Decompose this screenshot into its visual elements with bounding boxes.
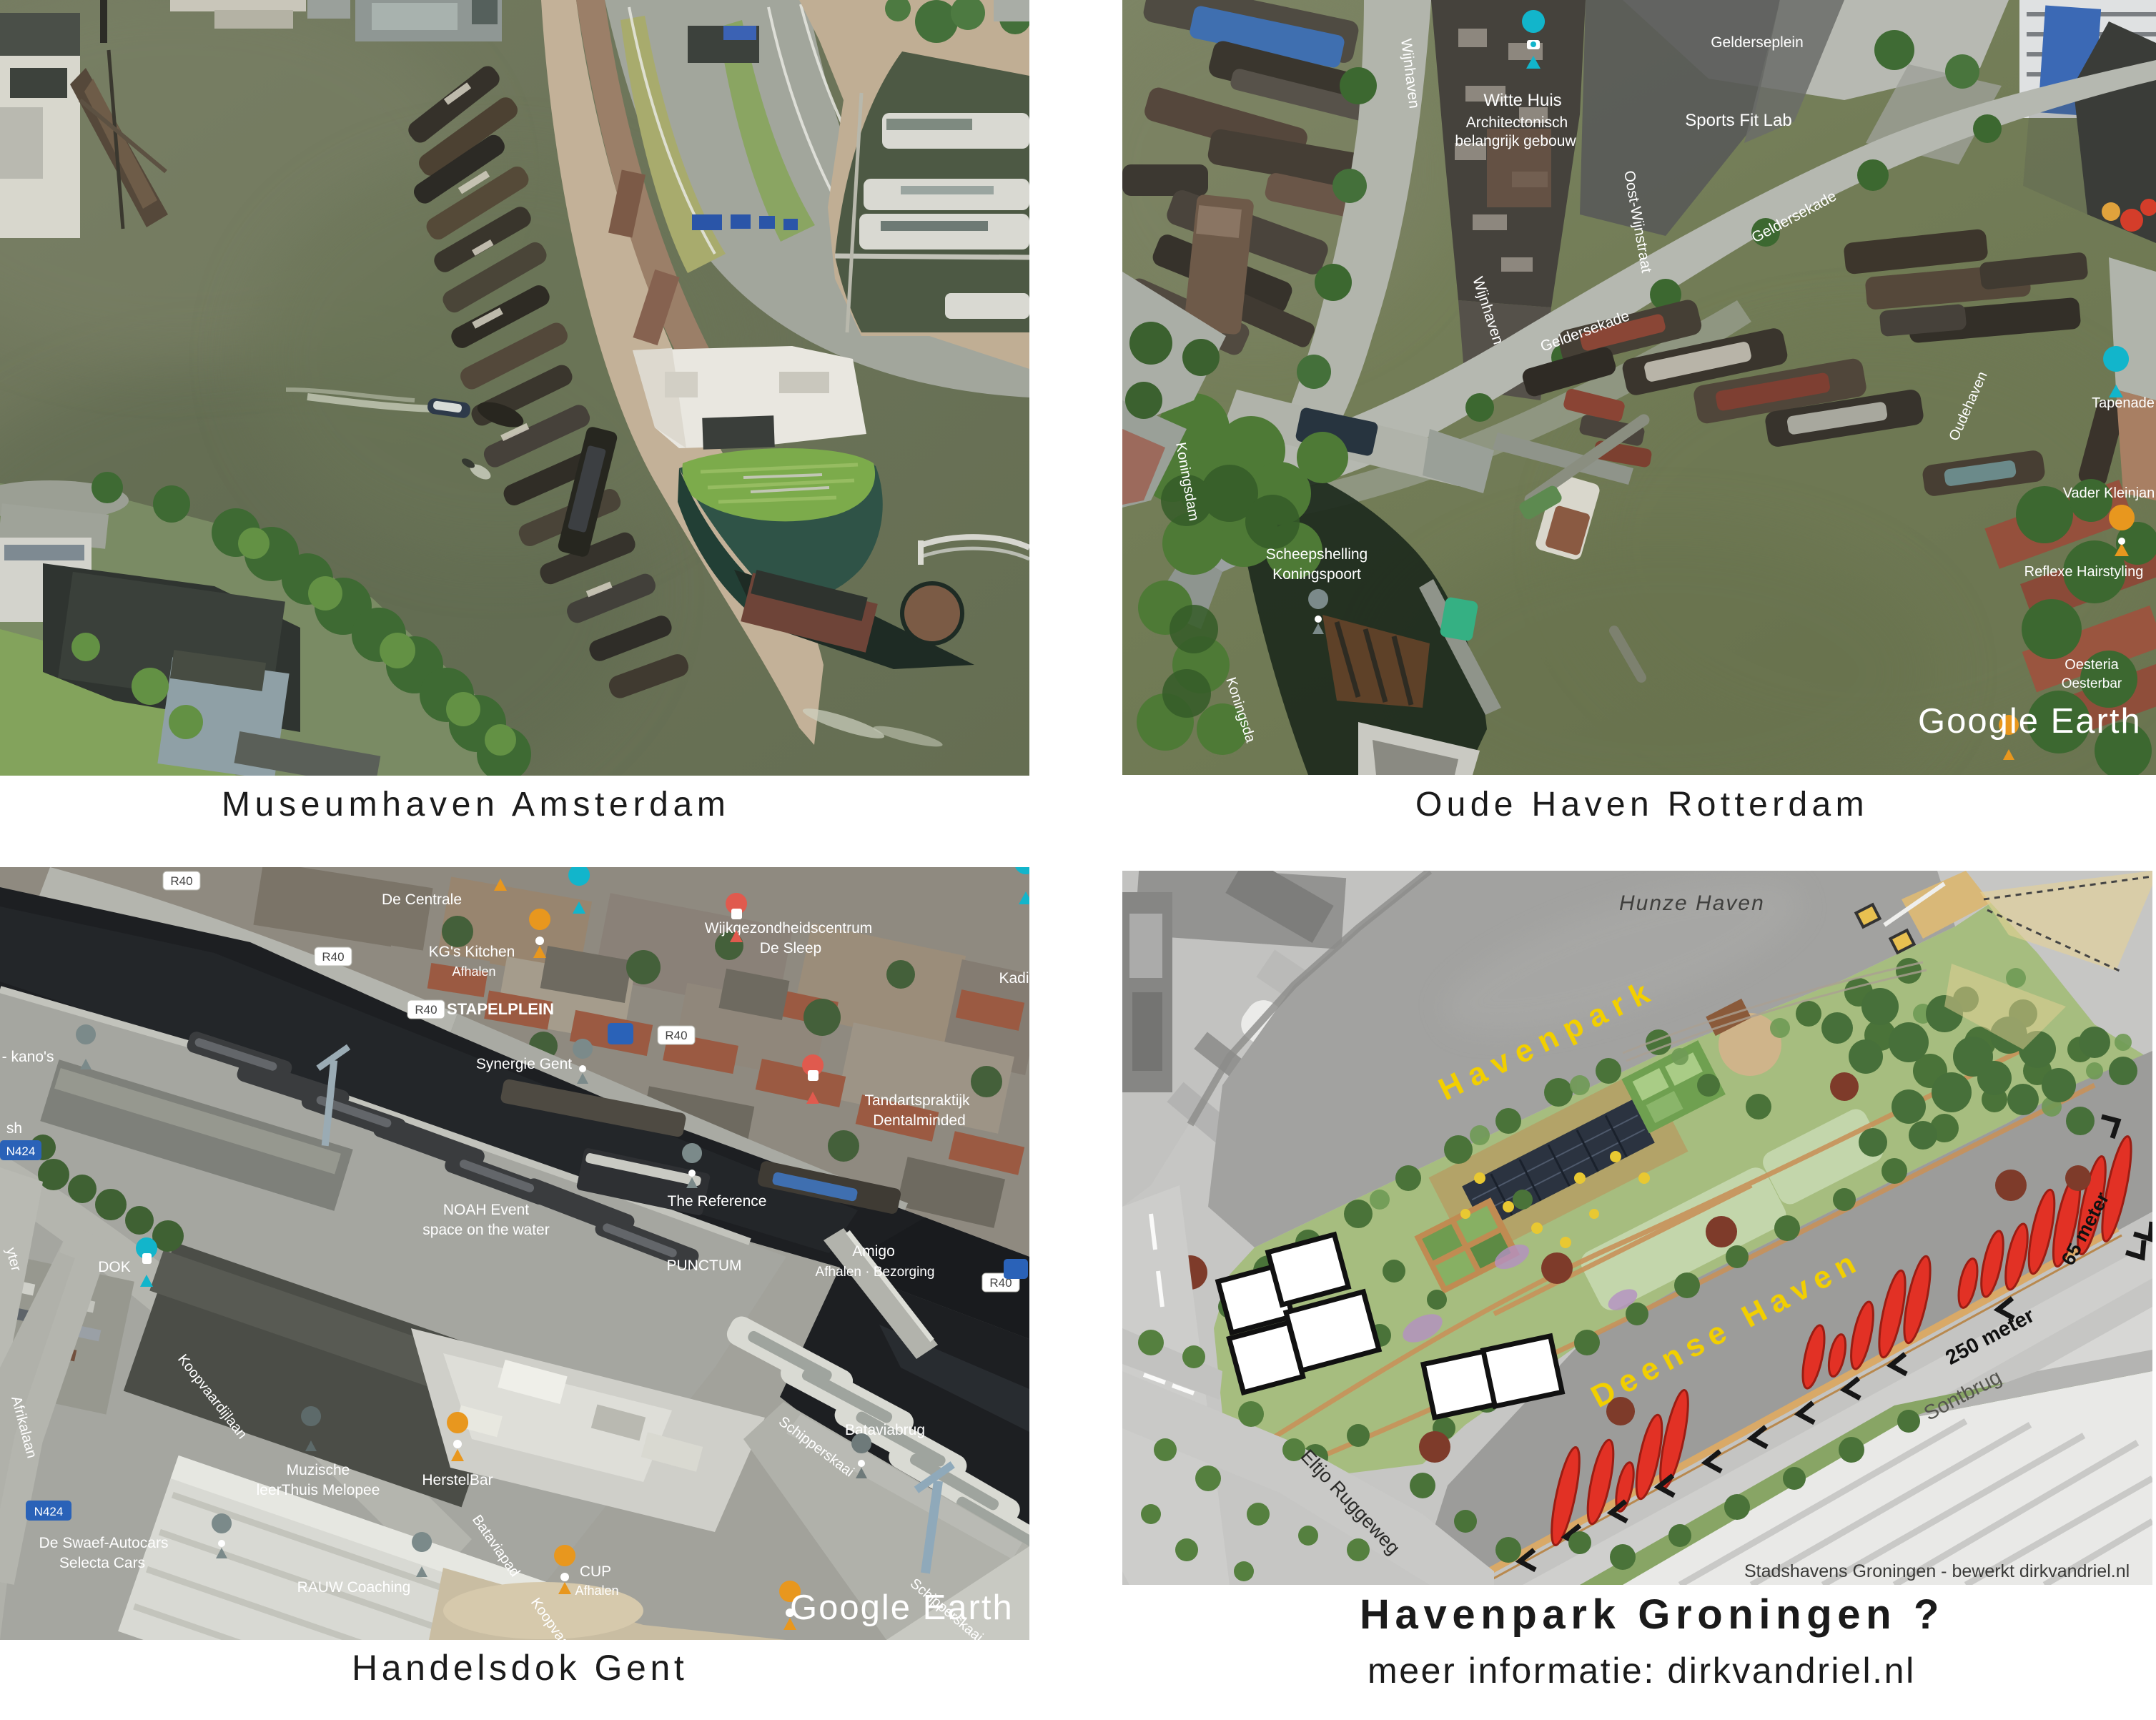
svg-text:R40: R40 <box>170 874 192 888</box>
svg-text:Oesteria: Oesteria <box>2064 657 2119 673</box>
svg-text:Tandartspraktijk: Tandartspraktijk <box>864 1092 970 1109</box>
svg-text:O - kano's: O - kano's <box>0 1049 54 1065</box>
svg-text:Tapenade: Tapenade <box>2092 395 2155 411</box>
svg-text:Amigo: Amigo <box>852 1243 895 1260</box>
svg-text:Kadir: Kadir <box>999 970 1029 987</box>
svg-text:Afhalen: Afhalen <box>575 1583 618 1598</box>
svg-text:Google Earth: Google Earth <box>790 1588 1014 1627</box>
svg-text:PUNCTUM: PUNCTUM <box>667 1257 742 1274</box>
svg-text:NOAH Event: NOAH Event <box>443 1202 529 1218</box>
svg-text:De Sleep: De Sleep <box>760 940 821 957</box>
svg-text:Stadshavens Groningen - bewer: Stadshavens Groningen - bewerkt dirkvand… <box>1744 1561 2130 1581</box>
svg-text:Muzische: Muzische <box>287 1462 350 1478</box>
svg-text:Gelderseplein: Gelderseplein <box>1711 34 1804 51</box>
svg-text:Vader Kleinjan C: Vader Kleinjan C <box>2063 485 2156 501</box>
svg-text:Witte Huis: Witte Huis <box>1483 91 1561 110</box>
svg-text:Wijkgezondheidscentrum: Wijkgezondheidscentrum <box>705 920 873 936</box>
svg-text:space on the water: space on the water <box>422 1222 549 1238</box>
svg-text:N424: N424 <box>34 1505 64 1518</box>
svg-text:sh: sh <box>6 1120 22 1137</box>
svg-text:DOK: DOK <box>98 1259 131 1275</box>
svg-text:N424: N424 <box>6 1145 36 1158</box>
svg-text:STAPELPLEIN: STAPELPLEIN <box>447 1000 554 1018</box>
svg-text:Oesterbar: Oesterbar <box>2062 676 2122 691</box>
svg-text:R40: R40 <box>665 1029 687 1042</box>
svg-text:Architectonisch: Architectonisch <box>1466 114 1568 131</box>
svg-text:Synergie Gent: Synergie Gent <box>476 1056 572 1072</box>
svg-text:Hunze Haven: Hunze Haven <box>1619 891 1765 915</box>
svg-text:Afhalen: Afhalen <box>452 964 495 979</box>
svg-text:R40: R40 <box>415 1003 437 1017</box>
svg-text:HerstelBar: HerstelBar <box>422 1472 493 1488</box>
svg-text:CUP: CUP <box>580 1563 611 1580</box>
svg-text:Sports Fit Lab: Sports Fit Lab <box>1685 111 1791 130</box>
svg-text:leerThuis Melopee: leerThuis Melopee <box>257 1482 380 1498</box>
svg-text:Dentalminded: Dentalminded <box>873 1112 966 1129</box>
svg-text:Google Earth: Google Earth <box>1918 702 2142 741</box>
svg-text:Koningspoort: Koningspoort <box>1272 566 1361 583</box>
svg-text:KG's Kitchen: KG's Kitchen <box>429 944 515 960</box>
svg-text:Selecta Cars: Selecta Cars <box>59 1555 145 1571</box>
svg-text:The Reference: The Reference <box>668 1193 767 1210</box>
svg-text:De Centrale: De Centrale <box>382 891 462 908</box>
svg-text:Reflexe Hairstyling: Reflexe Hairstyling <box>2024 564 2144 580</box>
svg-text:RAUW Coaching: RAUW Coaching <box>297 1579 411 1596</box>
svg-text:De Swaef-Autocars: De Swaef-Autocars <box>39 1535 169 1551</box>
svg-text:Scheepshelling: Scheepshelling <box>1266 546 1368 563</box>
svg-text:R40: R40 <box>322 950 344 964</box>
svg-text:belangrijk gebouw: belangrijk gebouw <box>1455 133 1576 149</box>
svg-text:Afhalen · Bezorging: Afhalen · Bezorging <box>816 1265 935 1280</box>
